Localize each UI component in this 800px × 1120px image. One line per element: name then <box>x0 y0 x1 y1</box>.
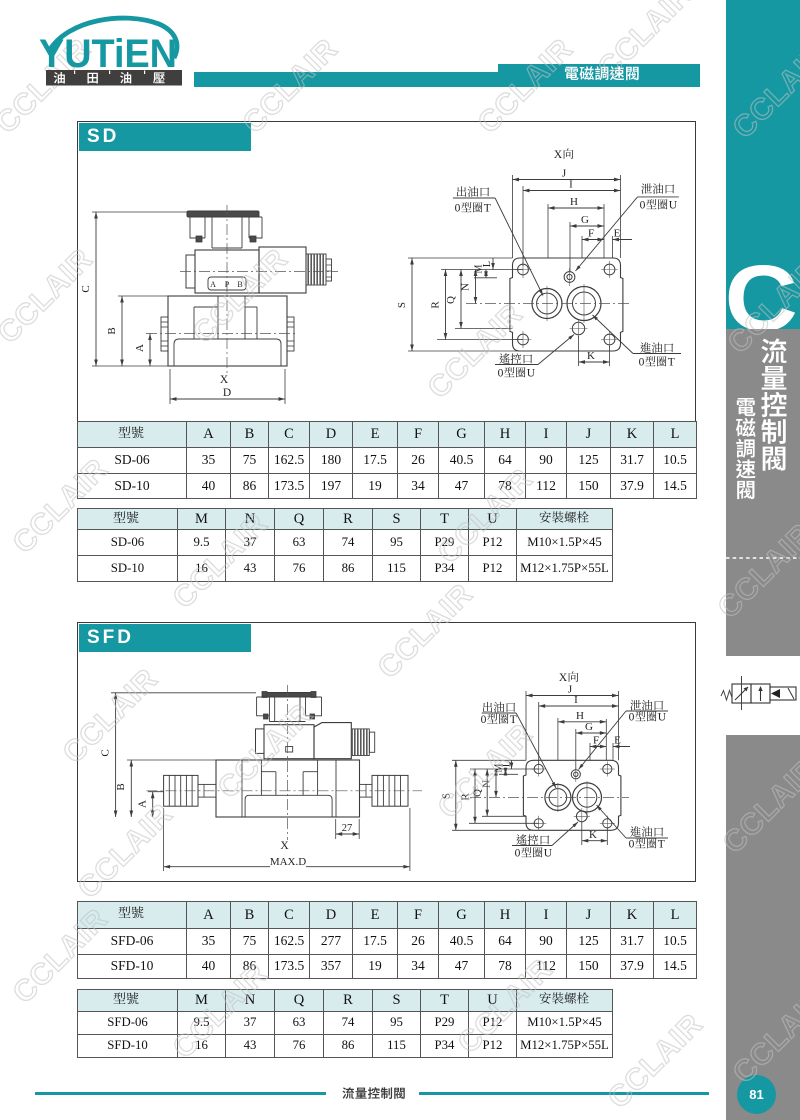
svg-text:R: R <box>430 301 442 309</box>
svg-text:0: 0 <box>515 848 521 860</box>
svg-text:T: T <box>484 203 491 215</box>
svg-text:D: D <box>223 387 231 399</box>
svg-text:U: U <box>527 368 536 380</box>
svg-text:B: B <box>115 783 127 790</box>
svg-text:0: 0 <box>639 357 645 369</box>
svg-text:S: S <box>396 302 408 308</box>
svg-text:MAX.D: MAX.D <box>270 856 306 868</box>
svg-text:X: X <box>220 374 229 386</box>
svg-text:K: K <box>587 350 595 362</box>
svg-text:S: S <box>441 793 453 799</box>
svg-text:T: T <box>658 839 665 851</box>
svg-text:U: U <box>658 712 667 724</box>
svg-text:0: 0 <box>455 203 461 215</box>
svg-text:E: E <box>614 228 621 240</box>
svg-text:G: G <box>585 721 593 733</box>
svg-text:N: N <box>481 780 493 788</box>
svg-text:0: 0 <box>640 200 646 212</box>
svg-text:0: 0 <box>629 712 635 724</box>
svg-text:G: G <box>581 214 589 226</box>
svg-text:X: X <box>280 840 289 852</box>
svg-text:C: C <box>80 285 92 292</box>
svg-text:U: U <box>544 848 553 860</box>
svg-text:Q: Q <box>445 296 457 304</box>
svg-text:T: T <box>668 357 675 369</box>
svg-text:A: A <box>210 280 216 289</box>
svg-text:J: J <box>568 684 573 696</box>
svg-text:B: B <box>237 280 242 289</box>
svg-text:H: H <box>570 196 578 208</box>
svg-text:F: F <box>588 228 594 240</box>
svg-text:CCLAIR: CCLAIR <box>602 1007 710 1115</box>
svg-text:YUTiEN: YUTiEN <box>39 32 177 76</box>
svg-text:L: L <box>502 761 513 767</box>
svg-text:L: L <box>482 261 493 267</box>
svg-text:T: T <box>510 714 517 726</box>
svg-text:A: A <box>134 344 146 352</box>
svg-text:E: E <box>614 735 621 747</box>
svg-text:0: 0 <box>481 714 487 726</box>
svg-text:A: A <box>137 800 149 808</box>
svg-text:C: C <box>726 246 798 335</box>
svg-text:0: 0 <box>629 839 635 851</box>
svg-text:R: R <box>460 793 472 801</box>
svg-text:C: C <box>100 749 112 756</box>
svg-text:X: X <box>554 149 563 161</box>
svg-text:B: B <box>106 327 118 334</box>
svg-text:N: N <box>460 283 472 291</box>
svg-text:H: H <box>576 710 584 722</box>
svg-text:27: 27 <box>342 823 353 834</box>
svg-text:Q: Q <box>472 789 484 797</box>
svg-text:0: 0 <box>498 368 504 380</box>
svg-text:X: X <box>559 672 568 684</box>
svg-text:U: U <box>669 200 678 212</box>
svg-text:J: J <box>562 168 567 180</box>
svg-text:I: I <box>574 694 578 706</box>
svg-text:I: I <box>569 179 573 191</box>
svg-text:K: K <box>589 829 597 841</box>
